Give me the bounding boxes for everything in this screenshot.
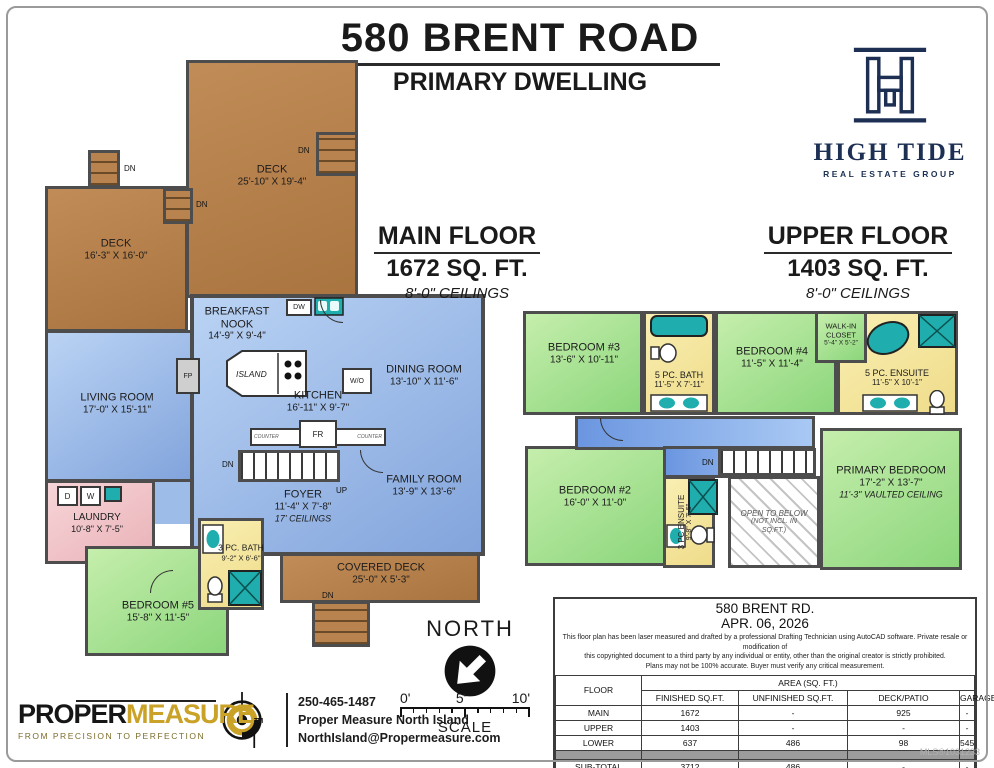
dryer-icon: D [57,486,78,506]
room-label-deck-left: DECK 16'-3" X 16'-0" [56,238,176,263]
toilet-icon [926,390,948,416]
room-label-covered-deck: COVERED DECK 25'-0" X 5'-3" [321,562,441,587]
room-label-living-room: LIVING ROOM 17'-0" X 15'-11" [57,392,177,417]
hightide-logo: HIGH TIDE REAL ESTATE GROUP [798,42,982,179]
propermeasure-logo: PROPERMEASURETM FROM PRECISION TO PERFEC… [18,699,218,741]
room-label-ensuite-5pc: 5 PC. ENSUITE 11'-5" X 10'-1" [862,368,932,388]
hightide-name: HIGH TIDE [798,139,982,167]
room-label-ensuite-3pc: 3 PC ENSUITE 9'-8" X 7'-5" [677,482,695,562]
upper-floor-sqft: 1403 SQ. FT. [758,255,958,283]
table-row: FLOOR AREA (SQ. FT.) [556,675,975,690]
dn-label: DN [322,591,334,600]
main-floor-title: MAIN FLOOR [374,222,540,254]
logo-tm: TM [254,718,262,725]
page-title: 580 BRENT ROAD [320,16,720,66]
island-label: ISLAND [236,369,267,379]
col-garage: GARAGE [960,690,975,705]
col-finished: FINISHED SQ.FT. [642,690,739,705]
table-date: APR. 06, 2026 [561,616,969,631]
table-header: 580 BRENT RD. APR. 06, 2026 This floor p… [555,599,975,675]
upper-stairs [718,448,816,476]
page-title-block: 580 BRENT ROAD PRIMARY DWELLING [320,16,720,97]
table-row: UPPER 1403 - - - [556,720,975,735]
shower-icon [918,314,956,348]
vendor-phone: 250-465-1487 [298,693,501,711]
counter-label: COUNTER [355,434,384,440]
room-label-open-to-below: OPEN TO BELOW (NOT INCL. IN SQ.FT.) [739,509,809,535]
double-sink-icon [862,394,918,412]
double-sink-icon [650,394,708,412]
deck-stairs-upper-left [88,150,120,188]
room-label-dining-room: DINING ROOM 13'-10" X 11'-6" [364,364,484,389]
room-label-bedroom-4: BEDROOM #4 11'-5" X 11'-4" [712,346,832,371]
room-label-primary-bedroom: PRIMARY BEDROOM 17'-2" X 13'-7" 11'-3" V… [826,464,956,499]
dn-label: DN [702,458,714,467]
room-label-kitchen: KITCHEN 16'-11" X 9'-7" [258,390,378,415]
room-label-breakfast-nook: BREAKFAST NOOK 14'-9" X 9'-4" [191,305,283,342]
mls-number: MLS®1031233 [920,747,980,757]
kitchen-counter: COUNTER FR COUNTER [250,428,386,446]
upper-floor-title: UPPER FLOOR [764,222,953,254]
covered-deck-stairs [312,601,370,647]
logo-tagline: FROM PRECISION TO PERFECTION [18,731,218,741]
dn-label: DN [298,146,310,155]
room-label-deck-large: DECK 25'-10" X 19'-4" [212,164,332,189]
floor-plan-page: 580 BRENT ROAD PRIMARY DWELLING HIGH TID… [0,0,994,768]
area-table: FLOOR AREA (SQ. FT.) FINISHED SQ.FT. UNF… [555,675,975,768]
fireplace-icon: FP [176,358,200,394]
room-label-bedroom-5: BEDROOM #5 15'-8" X 11'-5" [98,600,218,625]
dn-label: DN [196,200,208,209]
room-label-bath-3pc: 3 PC. BATH 9'-2" X 6'-6" [213,544,269,563]
room-label-bedroom-3: BEDROOM #3 13'-6" X 10'-11" [524,342,644,367]
col-area: AREA (SQ. FT.) [642,675,975,690]
dn-label: DN [222,460,234,469]
logo-measure: MEASURE [126,699,254,729]
dishwasher-icon: DW [286,299,312,316]
up-label: UP [336,486,347,495]
col-unfinished: UNFINISHED SQ.FT. [739,690,848,705]
table-address: 580 BRENT RD. [561,601,969,616]
upper-floor-heading: UPPER FLOOR 1403 SQ. FT. 8'-0" CEILINGS [758,222,958,302]
col-deck-patio: DECK/PATIO [848,690,960,705]
bathtub-icon [650,315,708,337]
counter-label: COUNTER [252,434,281,440]
hightide-monogram-icon [847,42,933,130]
logo-proper: PROPER [18,699,126,729]
main-floor-heading: MAIN FLOOR 1672 SQ. FT. 8'-0" CEILINGS [372,222,542,302]
deck-stairs-middle [163,188,193,224]
washer-icon: W [80,486,101,506]
table-row-subtotal: SUB-TOTAL 3712 486 - - [556,759,975,768]
north-label: NORTH [425,616,515,642]
area-info-table: 580 BRENT RD. APR. 06, 2026 This floor p… [553,597,977,768]
main-floor-sqft: 1672 SQ. FT. [372,255,542,283]
room-label-bedroom-2: BEDROOM #2 16'-0" X 11'-0" [535,485,655,510]
main-floor-ceilings: 8'-0" CEILINGS [372,285,542,302]
fridge-icon: FR [299,420,337,448]
table-row: LOWER 637 486 98 545 [556,735,975,750]
page-subtitle: PRIMARY DWELLING [320,68,720,97]
vendor-email: NorthIsland@Propermeasure.com [298,729,501,747]
laundry-sink-icon [104,486,122,502]
disclaimer-line: this copyrighted document to a third par… [561,652,969,662]
upper-floor-ceilings: 8'-0" CEILINGS [758,285,958,302]
vendor-block: PROPERMEASURETM FROM PRECISION TO PERFEC… [18,692,501,748]
shower-icon [228,570,262,606]
table-spacer-row [556,750,975,759]
dn-label: DN [124,164,136,173]
vendor-company: Proper Measure North Island [298,711,501,729]
room-label-bath-5pc: 5 PC. BATH 11'-5" X 7'-11" [644,370,714,390]
disclaimer-line: This floor plan has been laser measured … [561,633,969,652]
table-row: MAIN 1672 - 925 - [556,705,975,720]
col-floor: FLOOR [556,675,642,705]
room-label-family-room: FAMILY ROOM 13'-9" X 13'-6" [364,474,484,499]
room-label-walkin-closet: WALK-IN CLOSET 5'-4" X 5'-2" [818,322,864,347]
vendor-divider [286,693,288,747]
main-stairs [238,450,340,482]
room-label-laundry: LAUNDRY 10'-8" X 7'-5" [37,512,157,534]
disclaimer-line: Plans may not be 100% accurate. Buyer mu… [561,662,969,672]
hightide-tagline: REAL ESTATE GROUP [798,169,982,179]
scale-tick-10: 10' [512,690,530,706]
toilet-icon [650,342,678,364]
logo-rule [76,700,216,702]
soaker-tub-icon [864,318,912,358]
